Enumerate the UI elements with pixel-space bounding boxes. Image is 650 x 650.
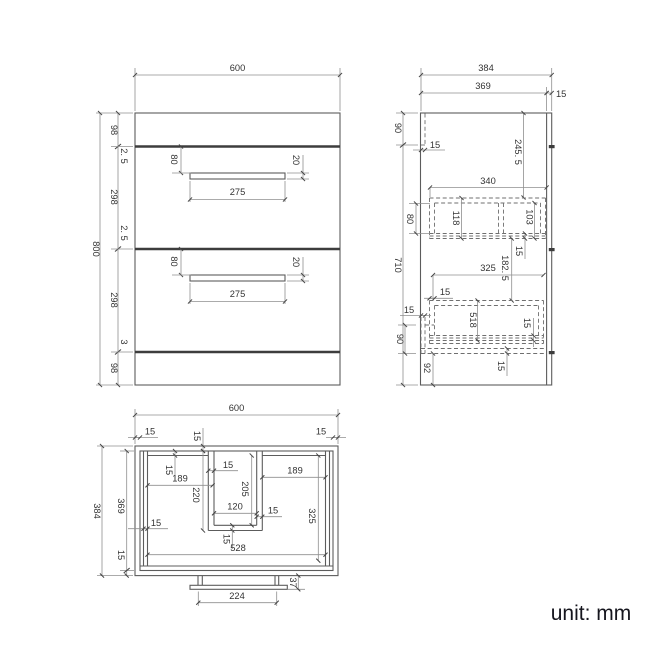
front-handle-2 [190, 275, 285, 281]
vanity-technical-drawing: 600 800 98 2. 5 298 2. 5 298 3 98 80 275… [0, 0, 650, 650]
dim-side-drawer2-bottom: 15 [522, 318, 532, 328]
dim-side-bottom-panel: 15 [496, 361, 506, 371]
front-view: 600 800 98 2. 5 298 2. 5 298 3 98 80 275… [91, 63, 340, 385]
side-divider-mark-1 [549, 145, 555, 148]
dim-front-height: 800 [91, 241, 101, 257]
dim-plan-wall-tr: 15 [316, 427, 326, 437]
dim-side-top-section: 90 [393, 123, 403, 133]
dim-plan-plinth-width: 224 [229, 591, 245, 601]
dim-plan-recess-outer: 220 [191, 487, 201, 503]
dim-plan-wall-bl: 15 [116, 550, 126, 560]
dim-side-plinth-height: 92 [422, 363, 432, 373]
dim-plan-wall-tl: 15 [145, 427, 155, 437]
unit-label: unit: mm [551, 602, 632, 625]
dim-side-bottom-section: 90 [395, 334, 405, 344]
dim-side-drawer1-bottom: 15 [514, 246, 524, 256]
dim-plan-recess-width: 120 [227, 502, 243, 512]
dim-plan-plinth-depth: 37 [288, 577, 298, 587]
dim-plan-recess-wall: 15 [223, 460, 233, 470]
dim-side-depth: 384 [478, 63, 494, 73]
dim-side-rail-width: 15 [430, 140, 440, 150]
dim-front-gap-3: 3 [119, 339, 129, 344]
dim-side-drawer1-inner-height: 103 [525, 209, 535, 225]
dim-plan-inner-width: 528 [230, 543, 246, 553]
side-cabinet-outline [421, 113, 552, 385]
dim-front-width: 600 [230, 63, 246, 73]
dim-side-drawer2-front: 15 [440, 287, 450, 297]
dim-front-gap-1: 2. 5 [119, 148, 129, 164]
dim-handle2-height: 20 [291, 257, 301, 267]
dim-handle2-width: 275 [230, 289, 246, 299]
dim-side-strip-width: 15 [404, 305, 414, 315]
dim-plan-width: 600 [229, 403, 245, 413]
dim-front-bottom-rail: 98 [109, 363, 119, 373]
dim-side-basin-depth: 245. 5 [513, 139, 523, 165]
plan-plinth-board [190, 585, 287, 589]
dim-side-drawer2-width: 518 [468, 312, 478, 328]
dim-side-drawer1-depth: 340 [480, 176, 496, 186]
dim-plan-inner-depth: 369 [116, 498, 126, 514]
dim-plan-back-panel: 15 [192, 431, 202, 441]
dim-front-drawer2-front: 298 [109, 292, 119, 308]
dim-handle2-offset: 80 [169, 256, 179, 266]
dim-plan-recess-inner: 205 [240, 481, 250, 497]
side-divider-mark-3 [549, 351, 555, 354]
dim-side-drawer1-offset: 80 [405, 214, 415, 224]
dim-plan-lining: 15 [151, 518, 161, 528]
dim-handle1-offset: 80 [169, 154, 179, 164]
dim-plan-right-bay: 189 [287, 466, 303, 476]
dim-side-drawer1-height: 118 [451, 211, 461, 226]
dim-front-gap-2: 2. 5 [119, 225, 129, 241]
side-view: 384 369 15 90 710 15 245. 5 340 [393, 63, 566, 385]
dim-plan-left-bay: 189 [172, 474, 188, 484]
plan-view: 600 15 15 15 384 369 15 15 189 220 15 [92, 403, 346, 606]
dim-handle1-width: 275 [230, 187, 246, 197]
side-divider-mark-2 [549, 248, 555, 251]
dim-side-body-height: 710 [393, 257, 403, 273]
dim-side-drawer2-depth: 325 [480, 263, 496, 273]
dim-front-top-rail: 98 [109, 125, 119, 135]
dim-plan-right-depth: 325 [307, 508, 317, 524]
dim-side-drawer-gap: 182. 5 [500, 255, 510, 281]
dim-side-back-panel: 15 [556, 89, 566, 99]
front-handle-1 [190, 173, 285, 179]
dim-side-inner-depth: 369 [475, 81, 491, 91]
dim-plan-recess-wall-r: 15 [268, 506, 278, 516]
dim-plan-depth: 384 [92, 503, 102, 519]
dim-handle1-height: 20 [291, 155, 301, 165]
dim-front-drawer1-front: 298 [109, 189, 119, 205]
